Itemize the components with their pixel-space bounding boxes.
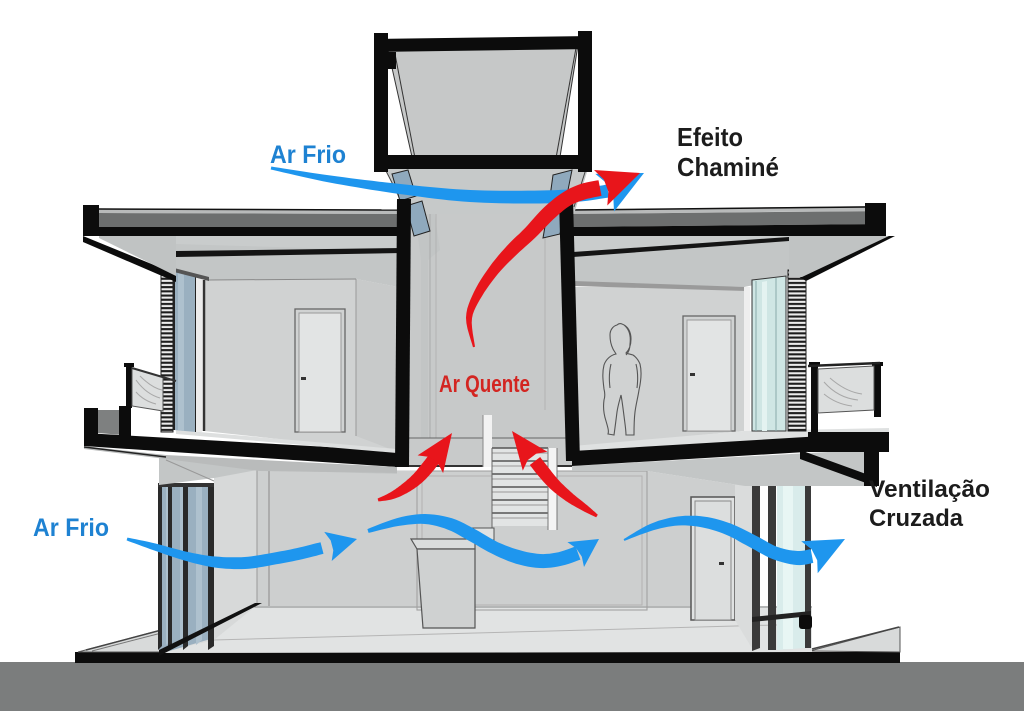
- svg-text:Efeito: Efeito: [677, 122, 743, 152]
- svg-text:Ar Frio: Ar Frio: [33, 514, 109, 542]
- svg-text:Ar Frio: Ar Frio: [270, 141, 346, 169]
- svg-text:Chaminé: Chaminé: [677, 152, 779, 182]
- svg-text:Cruzada: Cruzada: [869, 505, 964, 532]
- svg-text:Ar Quente: Ar Quente: [439, 371, 530, 398]
- svg-text:Ventilação: Ventilação: [869, 476, 990, 503]
